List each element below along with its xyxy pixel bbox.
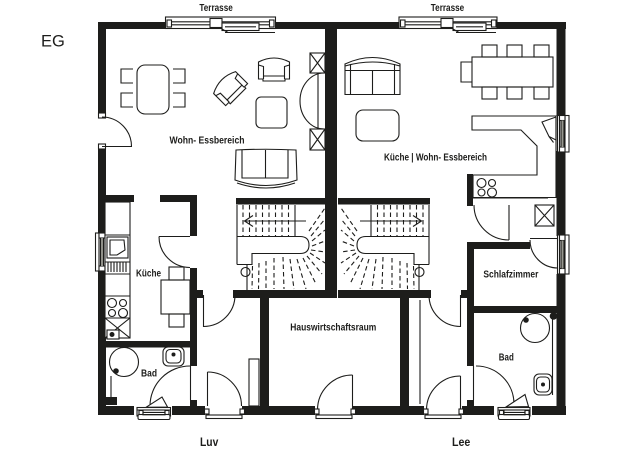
svg-text:Küche | Wohn- Essbereich: Küche | Wohn- Essbereich (384, 153, 487, 164)
svg-text:Hauswirtschaftsraum: Hauswirtschaftsraum (290, 322, 376, 333)
svg-text:Terrasse: Terrasse (431, 3, 465, 14)
svg-text:Terrasse: Terrasse (199, 3, 233, 14)
svg-text:Küche: Küche (136, 268, 161, 279)
svg-text:EG: EG (41, 33, 65, 51)
svg-text:Luv: Luv (200, 435, 218, 449)
svg-text:Lee: Lee (452, 435, 470, 449)
svg-text:Wohn- Essbereich: Wohn- Essbereich (170, 135, 245, 146)
svg-text:Schlafzimmer: Schlafzimmer (483, 270, 538, 281)
svg-text:Bad: Bad (499, 353, 514, 364)
svg-text:Bad: Bad (141, 369, 157, 380)
